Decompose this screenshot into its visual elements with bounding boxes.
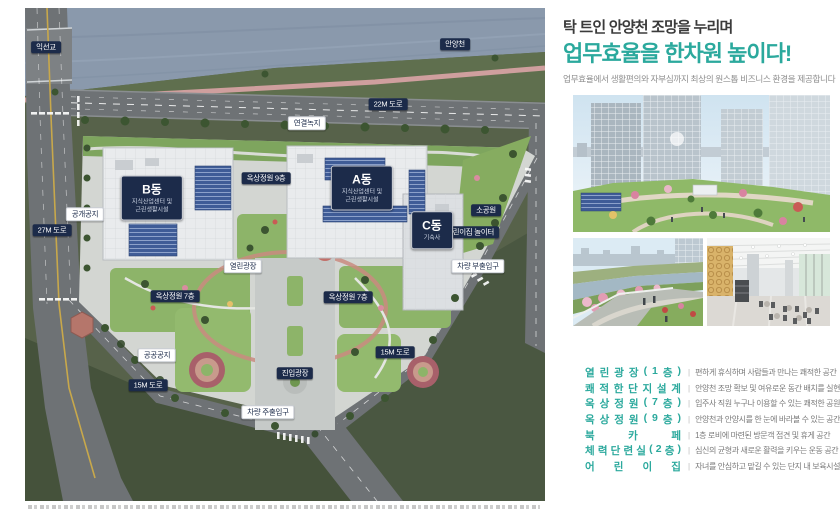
feature-title: 열린광장(1층) xyxy=(585,365,681,380)
map-label: 옥상정원 7층 xyxy=(151,290,200,302)
photo-rooftop-garden xyxy=(573,95,830,232)
map-label: 차량 주출입구 xyxy=(241,405,294,419)
map-label: 익선교 xyxy=(31,41,61,53)
feature-row: 열린광장(1층)|편하게 휴식하며 사람들과 만나는 쾌적한 공간 xyxy=(585,365,837,381)
feature-separator: | xyxy=(688,415,690,424)
map-label: 공공공지 xyxy=(138,348,176,362)
feature-title: 체력단련실(2층) xyxy=(585,443,681,458)
headline-main: 업무효율을 한차원 높이다! xyxy=(563,36,791,68)
map-caption-cropped xyxy=(28,505,540,509)
feature-title: 어린이집 xyxy=(585,459,681,474)
site-plan-map: 익선교안양천22M 도로연결녹지옥상정원 9층공개공지27M 도로소공원어린이집… xyxy=(25,8,545,501)
feature-desc: 자녀를 안심하고 맡길 수 있는 단지 내 보육시설 xyxy=(695,461,840,472)
map-label: 15M 도로 xyxy=(129,379,168,391)
feature-desc: 심신의 균형과 새로운 활력을 키우는 운동 공간 xyxy=(695,445,838,456)
building-label: B동지식산업센터 및근린생활시설 xyxy=(121,176,183,221)
map-label: 진입광장 xyxy=(277,367,313,379)
map-label: 안양천 xyxy=(440,38,470,50)
feature-desc: 안양천 조망 확보 및 여유로운 동간 배치를 실현 xyxy=(695,383,840,394)
feature-row: 어린이집|자녀를 안심하고 맡길 수 있는 단지 내 보육시설 xyxy=(585,459,837,475)
building-label: C동기숙사 xyxy=(411,211,453,249)
map-label: 22M 도로 xyxy=(369,98,408,110)
map-label: 공개공지 xyxy=(66,207,104,221)
feature-separator: | xyxy=(688,399,690,408)
photo-lobby-cafe xyxy=(707,238,830,326)
page: 익선교안양천22M 도로연결녹지옥상정원 9층공개공지27M 도로소공원어린이집… xyxy=(0,0,840,510)
map-label: 연결녹지 xyxy=(288,116,326,130)
headline-sub: 탁 트인 안양천 조망을 누리며 xyxy=(563,16,732,37)
map-label: 열린광장 xyxy=(224,259,262,273)
map-label-layer: 익선교안양천22M 도로연결녹지옥상정원 9층공개공지27M 도로소공원어린이집… xyxy=(25,8,545,501)
feature-title: 옥상정원(7층) xyxy=(585,396,681,411)
building-label: A동지식산업센터 및근린생활시설 xyxy=(331,166,393,211)
map-label: 소공원 xyxy=(471,204,501,216)
feature-desc: 입주사 직원 누구나 이용할 수 있는 쾌적한 공원 xyxy=(695,398,840,409)
feature-separator: | xyxy=(688,446,690,455)
map-label: 옥상정원 9층 xyxy=(242,172,291,184)
feature-separator: | xyxy=(688,368,690,377)
feature-title: 북카페 xyxy=(585,428,681,443)
map-label: 차량 부출입구 xyxy=(451,259,504,273)
feature-desc: 편하게 휴식하며 사람들과 만나는 쾌적한 공간 xyxy=(695,367,836,378)
map-label: 옥상정원 7층 xyxy=(324,291,373,303)
feature-title: 쾌적한단지설계 xyxy=(585,381,681,396)
feature-row: 북카페|1층 로비에 마련된 방문객 접견 및 휴게 공간 xyxy=(585,427,837,443)
feature-separator: | xyxy=(688,462,690,471)
feature-desc: 안양천과 안양시를 한 눈에 바라볼 수 있는 공간 xyxy=(695,414,840,425)
feature-desc: 1층 로비에 마련된 방문객 접견 및 휴게 공간 xyxy=(695,430,830,441)
feature-title: 옥상정원(9층) xyxy=(585,412,681,427)
feature-list: 열린광장(1층)|편하게 휴식하며 사람들과 만나는 쾌적한 공간쾌적한단지설계… xyxy=(585,365,837,474)
right-panel: 탁 트인 안양천 조망을 누리며 업무효율을 한차원 높이다! 업무효율에서 생… xyxy=(563,0,836,510)
feature-row: 옥상정원(7층)|입주사 직원 누구나 이용할 수 있는 쾌적한 공원 xyxy=(585,396,837,412)
map-label: 27M 도로 xyxy=(33,224,72,236)
feature-separator: | xyxy=(688,431,690,440)
map-label: 15M 도로 xyxy=(376,346,415,358)
feature-separator: | xyxy=(688,384,690,393)
feature-row: 옥상정원(9층)|안양천과 안양시를 한 눈에 바라볼 수 있는 공간 xyxy=(585,412,837,428)
headline-desc: 업무효율에서 생활편의와 자부심까지 최상의 원스톱 비즈니스 환경을 제공합니… xyxy=(563,72,835,85)
feature-row: 체력단련실(2층)|심신의 균형과 새로운 활력을 키우는 운동 공간 xyxy=(585,443,837,459)
feature-row: 쾌적한단지설계|안양천 조망 확보 및 여유로운 동간 배치를 실현 xyxy=(585,381,837,397)
photo-riverside-walkway xyxy=(573,238,703,326)
